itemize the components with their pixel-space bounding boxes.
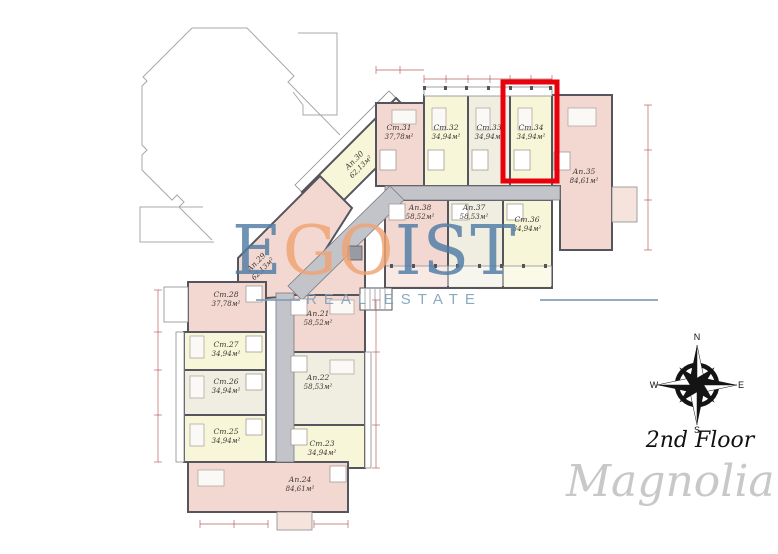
unit-area: 37,78м² — [212, 300, 241, 308]
balcony-st28 — [164, 287, 188, 322]
logo-letter: E — [232, 218, 283, 286]
unit-area: 34,94м² — [517, 133, 546, 141]
compass-west-label: W — [650, 380, 659, 390]
logo-letter: T — [470, 218, 516, 286]
logo-letter: G — [283, 218, 338, 286]
unit-label: Ст.23 — [309, 439, 334, 448]
unit-label: Ап.37 — [462, 203, 486, 212]
unit-area: 34,94м² — [432, 133, 461, 141]
compass-east-label: E — [738, 380, 744, 390]
unit-label: Ап.22 — [306, 373, 330, 382]
unit-label: Ап.35 — [572, 167, 596, 176]
unit-label: Ап.21 — [306, 309, 330, 318]
unit-label: Ст.33 — [476, 123, 501, 132]
unit-label: Ст.27 — [213, 340, 238, 349]
unit-ap-24 — [188, 462, 348, 512]
unit-area: 34,94м² — [212, 437, 241, 445]
unit-area: 37,78м² — [385, 133, 414, 141]
floor-label: 2nd Floor — [645, 428, 755, 453]
unit-label: Ст.36 — [514, 215, 539, 224]
unit-label: Ст.28 — [213, 290, 238, 299]
unit-area: 34,94м² — [513, 225, 542, 233]
corridor-horizontal — [385, 186, 560, 200]
logo-letter: S — [423, 218, 471, 286]
unit-label: Ст.25 — [213, 427, 238, 436]
unit-label: Ст.26 — [213, 377, 238, 386]
balcony-ap24 — [277, 512, 312, 530]
unit-area: 84,61м² — [286, 485, 315, 493]
project-name-watermark: Magnolia — [566, 456, 775, 507]
unit-label: Ст.34 — [518, 123, 543, 132]
logo-letter: I — [395, 218, 423, 286]
compass-rose: N E S W — [650, 332, 744, 435]
floor-plan-page: Ап.21 58,52м² Ап.22 58,53м² Ст.23 34,94м… — [0, 0, 778, 554]
compass-points — [657, 345, 737, 425]
balcony-right-column — [365, 352, 371, 468]
unit-area: 34,94м² — [308, 449, 337, 457]
unit-area: 34,94м² — [212, 350, 241, 358]
balcony-ap35 — [612, 187, 637, 222]
unit-area: 84,61м² — [570, 177, 599, 185]
tagline-rule-right — [540, 299, 658, 301]
unit-area: 58,52м² — [304, 319, 333, 327]
egoist-logo: EGOIST — [232, 218, 517, 286]
balcony-left-column — [176, 332, 184, 462]
unit-label: Ап.38 — [408, 203, 432, 212]
tagline-rule-left — [256, 299, 300, 301]
egoist-tagline: REAL ESTATE — [306, 291, 482, 308]
unit-area: 58,53м² — [304, 383, 333, 391]
compass-north-label: N — [694, 332, 701, 342]
unit-area: 34,94м² — [475, 133, 504, 141]
unit-area: 34,94м² — [212, 387, 241, 395]
logo-letter: O — [338, 218, 395, 286]
unit-label: Ст.31 — [386, 123, 411, 132]
unit-label: Ст.32 — [433, 123, 458, 132]
unit-label: Ап.24 — [288, 475, 312, 484]
